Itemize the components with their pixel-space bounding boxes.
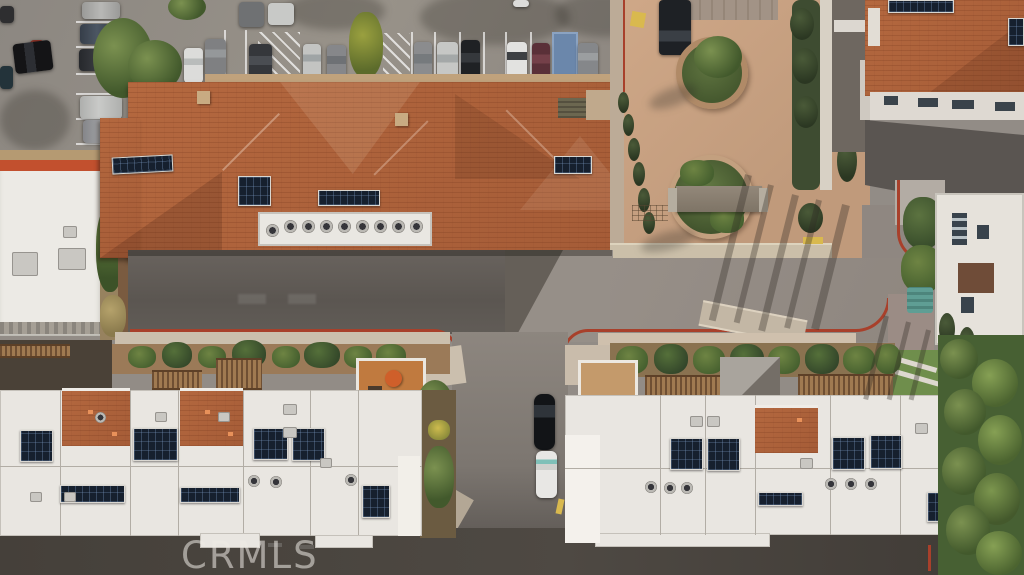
cypress-tree [792,48,818,84]
rooftop-ac-unit [58,248,86,270]
roof-vent [395,113,408,126]
roof-joint [310,390,311,536]
suv-gray [205,39,226,76]
hvac-fan [338,220,351,233]
rooftop-ac-unit [63,226,77,238]
hedge [805,344,839,374]
car [268,3,294,25]
roof-joint [705,395,706,535]
hvac-fan [248,475,260,487]
orange-eave-stripe [0,160,104,171]
tree-shadow [0,90,70,150]
roof-joint [660,395,661,535]
hedge [128,346,156,368]
tree [349,12,383,78]
roof-deck-brown [958,263,994,293]
garage-wall [565,435,600,543]
hvac-fan [95,412,106,423]
rooftop-ac-unit [915,423,928,434]
planter-shrub [680,160,714,186]
roof-joint [358,390,359,536]
rooftop-ac-unit [320,458,332,468]
roof-joint [60,390,61,536]
paving-patch [586,90,612,120]
building-northeast [865,0,1024,122]
white-wall-edge [868,8,880,46]
red-curb [623,0,625,92]
eave-shadow [128,250,612,256]
patio-lounge-teal [907,287,933,313]
rooftop-ac-unit [64,492,76,502]
car [82,2,120,19]
tile-slope [180,388,243,446]
hvac-fan [825,478,837,490]
roof-vent-dot [205,410,210,414]
solar-array [180,487,240,503]
cypress-tree [790,8,814,40]
street-dark-segment [128,250,520,334]
rooftop-ac-unit [283,404,297,415]
entry-stub [595,533,770,547]
tile-roof-left-wing [100,118,140,258]
roof-joint [243,390,244,536]
solar-array [554,156,592,174]
speed-bump [630,11,646,28]
deck-railing [216,358,262,390]
crmls-watermark: CRMLS [181,534,319,575]
solar-array [870,435,902,469]
hvac-fan [374,220,387,233]
van-white-parked [536,451,557,498]
tree [940,339,978,379]
yellow-flowers [428,420,450,440]
roof-joint [178,390,179,536]
solar-array [832,437,865,470]
hvac-fan [645,481,657,493]
car [0,6,14,23]
sidewalk [115,332,450,344]
cypress-tree [794,96,818,128]
rooftop-ac-unit [690,416,703,427]
hvac-fan [865,478,877,490]
hedge [654,344,688,374]
roof-vent-dot [88,410,93,414]
solar-array [1008,18,1024,46]
cypress-tree [618,92,629,113]
window [884,96,898,105]
hvac-fan [320,220,333,233]
aerial-photo: CRMLS [0,0,1024,575]
solar-array [888,0,954,13]
paver-grid [632,205,668,221]
roof-vent-dot [112,432,117,436]
solar-array [362,485,390,518]
solar-array [238,176,271,206]
tile-roof [865,0,1024,96]
tree [978,415,1022,465]
roof-joint [830,395,831,535]
hvac-fan [681,482,693,494]
solar-array [20,430,53,462]
hillside-trees [938,335,1024,575]
hvac-fan [302,220,315,233]
solar-array [112,154,174,174]
deck-railing [798,374,893,397]
cypress-tree [633,162,645,186]
side-walk [610,0,624,252]
hedge [272,346,300,368]
hvac-fan [410,220,423,233]
hedge [162,342,192,368]
entry-stub [315,535,373,548]
gate-post [668,188,677,212]
entry-pergola [558,98,586,118]
hvac-fan [356,220,369,233]
roof-joint [0,466,422,467]
suv-black [12,40,53,74]
solar-array [318,190,380,206]
hvac-fan [345,474,357,486]
rooftop-ac-unit [218,412,230,422]
roof-joint [130,390,131,536]
window [977,225,989,239]
roof-vent-dot [228,432,233,436]
car [0,66,13,89]
window [918,98,938,107]
solar-array [133,428,178,461]
roof-vent-dot [797,418,802,422]
rooftop-ac-unit [30,492,42,502]
tile-slope [755,405,818,453]
window [961,297,974,313]
solar-array [758,492,803,506]
hvac-fan [270,476,282,488]
rooftop-ac-unit [800,458,813,469]
car [239,2,264,27]
roof-joint [565,468,990,469]
garage-wall [398,456,420,536]
pavement-mark [238,294,266,304]
entry-gate [676,186,762,212]
planter-tree [694,36,742,78]
pavement-mark [288,294,316,304]
window [952,100,974,109]
hedge [304,342,340,368]
car-black-parked [534,394,555,450]
hvac-fan [845,478,857,490]
solar-array [707,438,740,471]
rooftop-ac-unit [12,252,38,276]
car [578,43,598,77]
cypress-tree [623,114,634,136]
flat-roof-building-west-roof [0,160,104,336]
tree [976,531,1022,575]
wood-fence [0,344,70,358]
deck-railing [152,370,202,390]
hvac-fan [266,224,279,237]
hvac-fan [284,220,297,233]
car-white [513,0,529,7]
rooftop-ac-unit [155,412,167,422]
walkway [820,0,832,190]
window [995,102,1015,111]
rooftop-ac-unit [707,416,720,427]
window-row [952,213,967,245]
palm-tree [424,446,454,508]
solar-array [670,438,703,470]
hvac-fan [664,482,676,494]
hvac-fan [392,220,405,233]
rooftop-ac-unit [283,427,297,438]
cypress-tree [628,138,640,161]
main-building [100,74,612,258]
roof-vent [197,91,210,104]
patio-umbrella [385,370,402,387]
